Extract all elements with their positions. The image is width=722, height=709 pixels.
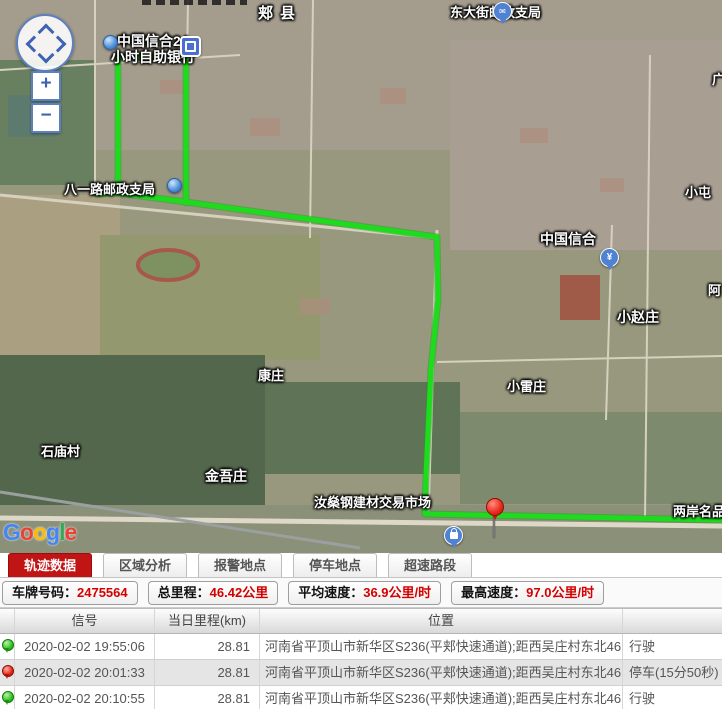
average-speed-label: 平均速度：	[298, 585, 363, 600]
atm-icon[interactable]	[180, 36, 201, 57]
clipped-map-label	[142, 0, 247, 5]
map-label-county: 郏县	[258, 2, 302, 23]
header-signal: 信号	[15, 609, 155, 633]
row-location: 河南省平顶山市新华区S236(平郏快速通道);距西吴庄村东北46	[260, 634, 623, 659]
map-pan-control[interactable]	[16, 14, 74, 72]
row-status: 停车(15分50秒)	[623, 660, 722, 685]
row-time: 2020-02-02 19:55:06	[15, 634, 155, 659]
zoom-in-button[interactable]: +	[31, 71, 61, 101]
gps-route-polyline	[0, 0, 722, 553]
signal-pin-icon	[2, 639, 12, 654]
map-label-credit-union: 中国信合	[540, 229, 596, 249]
row-time: 2020-02-02 20:10:55	[15, 686, 155, 709]
total-mileage-stat: 总里程：46.42公里	[148, 581, 279, 605]
plate-number-label: 车牌号码：	[12, 585, 77, 600]
max-speed-stat: 最高速度：97.0公里/时	[451, 581, 604, 605]
tab-speeding-sections[interactable]: 超速路段	[388, 553, 472, 577]
poi-marker-bank-dot[interactable]	[103, 35, 118, 50]
average-speed-stat: 平均速度：36.9公里/时	[288, 581, 441, 605]
map-label-kangzhuang: 康庄	[258, 365, 284, 384]
plate-number-stat: 车牌号码：2475564	[2, 581, 138, 605]
table-header-row: 信号 当日里程(km) 位置	[0, 608, 722, 634]
google-logo: Google	[3, 519, 76, 546]
plate-number-value: 2475564	[77, 585, 128, 600]
row-status: 行驶	[623, 686, 722, 709]
signal-pin-icon	[2, 665, 12, 680]
tab-trajectory-data[interactable]: 轨迹数据	[8, 553, 92, 577]
tab-alarm-locations[interactable]: 报警地点	[198, 553, 282, 577]
table-row[interactable]: 2020-02-02 20:10:55 28.81 河南省平顶山市新华区S236…	[0, 686, 722, 709]
satellite-map[interactable]: 郏县 东大街邮政支局 中国信合24 小时自助银行 八一路邮政支局 中国信合 小屯…	[0, 0, 722, 553]
map-label-shimiaocun: 石庙村	[41, 441, 80, 460]
map-label-partial-right: 阿	[708, 280, 721, 299]
map-label-bayi-post: 八一路邮政支局	[64, 179, 155, 198]
pan-right-icon[interactable]	[50, 36, 67, 53]
row-mileage: 28.81	[155, 634, 260, 659]
tab-parking-locations[interactable]: 停车地点	[293, 553, 377, 577]
pan-down-icon[interactable]	[38, 47, 55, 64]
header-icon-column	[0, 609, 15, 633]
trajectory-table: 信号 当日里程(km) 位置 2020-02-02 19:55:06 28.81…	[0, 608, 722, 709]
header-status	[623, 609, 722, 633]
post-office-marker-icon[interactable]: ✉	[493, 2, 512, 21]
tab-area-analysis[interactable]: 区域分析	[103, 553, 187, 577]
row-location: 河南省平顶山市新华区S236(平郏快速通道);距西吴庄村东北46	[260, 686, 623, 709]
map-label-xiaoleizhuang: 小雷庄	[507, 376, 546, 395]
average-speed-value: 36.9公里/时	[363, 585, 431, 600]
row-mileage: 28.81	[155, 660, 260, 685]
row-time: 2020-02-02 20:01:33	[15, 660, 155, 685]
max-speed-label: 最高速度：	[461, 585, 526, 600]
row-mileage: 28.81	[155, 686, 260, 709]
header-location: 位置	[260, 609, 623, 633]
max-speed-value: 97.0公里/时	[526, 585, 594, 600]
row-location: 河南省平顶山市新华区S236(平郏快速通道);距西吴庄村东北46	[260, 660, 623, 685]
pan-up-icon[interactable]	[38, 24, 55, 41]
map-label-xiaozhaozhuang: 小赵庄	[617, 307, 659, 327]
table-row[interactable]: 2020-02-02 20:01:33 28.81 河南省平顶山市新华区S236…	[0, 660, 722, 686]
map-label-building-market: 汝燊钢建材交易市场	[314, 492, 431, 511]
map-label-partial-topright: 广	[712, 69, 722, 88]
shopping-market-marker-icon[interactable]	[444, 526, 463, 545]
table-row[interactable]: 2020-02-02 19:55:06 28.81 河南省平顶山市新华区S236…	[0, 634, 722, 660]
total-mileage-value: 46.42公里	[210, 585, 269, 600]
map-label-jinwuzhuang: 金吾庄	[205, 466, 247, 486]
header-daily-mileage: 当日里程(km)	[155, 609, 260, 633]
signal-pin-icon	[2, 691, 12, 706]
pan-left-icon[interactable]	[26, 36, 43, 53]
bottom-tab-bar: 轨迹数据 区域分析 报警地点 停车地点 超速路段	[0, 553, 722, 578]
vehicle-tracking-app: 郏县 东大街邮政支局 中国信合24 小时自助银行 八一路邮政支局 中国信合 小屯…	[0, 0, 722, 709]
map-label-xiaotun: 小屯	[685, 182, 711, 201]
yen-bank-marker-icon[interactable]: ¥	[600, 248, 619, 267]
zoom-out-button[interactable]: −	[31, 103, 61, 133]
map-label-liangan-mingpin: 两岸名品	[673, 501, 722, 520]
poi-marker-bayi-post[interactable]	[167, 178, 182, 193]
trip-stats-bar: 车牌号码：2475564 总里程：46.42公里 平均速度：36.9公里/时 最…	[0, 578, 722, 608]
total-mileage-label: 总里程：	[158, 585, 210, 600]
row-status: 行驶	[623, 634, 722, 659]
